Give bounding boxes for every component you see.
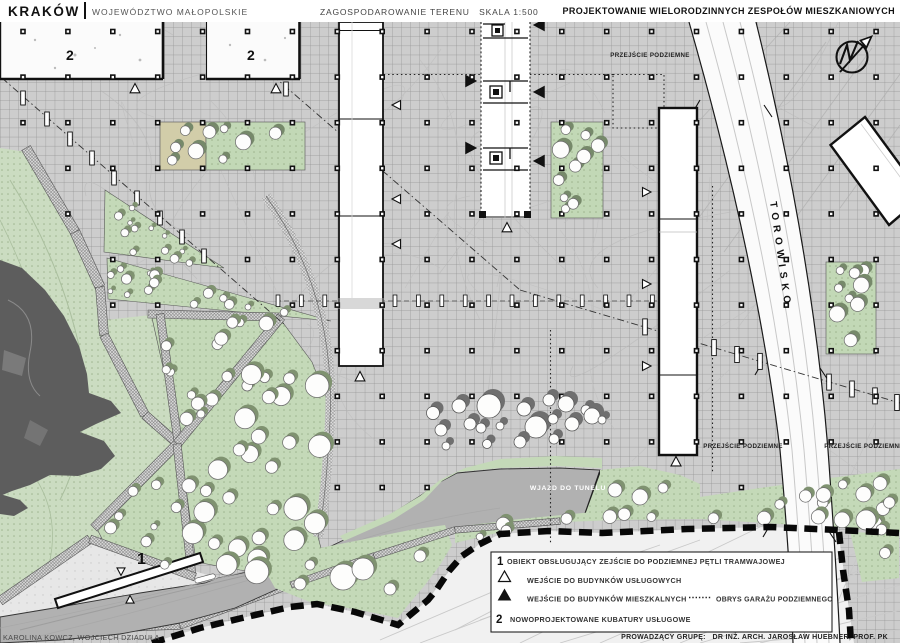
svg-text:2: 2 bbox=[247, 47, 255, 63]
svg-text:OBRYS GARAŻU PODZIEMNEGO: OBRYS GARAŻU PODZIEMNEGO bbox=[716, 596, 833, 604]
svg-text:WEJŚCIE DO BUDYNKÓW MIESZKALNY: WEJŚCIE DO BUDYNKÓW MIESZKALNYCH bbox=[527, 595, 687, 604]
svg-text:PRZEJŚCIE PODZIEMNE: PRZEJŚCIE PODZIEMNE bbox=[610, 52, 690, 59]
svg-text:OBIEKT OBSŁUGUJĄCY ZEJŚCIE DO: OBIEKT OBSŁUGUJĄCY ZEJŚCIE DO PODZIEMNEJ… bbox=[507, 557, 785, 566]
svg-text:WJAZD DO TUNELU: WJAZD DO TUNELU bbox=[530, 485, 606, 492]
svg-text:WEJŚCIE DO BUDYNKÓW USŁUGOWYCH: WEJŚCIE DO BUDYNKÓW USŁUGOWYCH bbox=[527, 576, 682, 585]
svg-text:NOWOPROJEKTOWANE KUBATURY USŁU: NOWOPROJEKTOWANE KUBATURY USŁUGOWE bbox=[510, 615, 691, 624]
svg-text:1: 1 bbox=[497, 556, 504, 568]
svg-text:PRZEJŚCIE PODZIEMNE: PRZEJŚCIE PODZIEMNE bbox=[703, 443, 783, 450]
svg-text:1: 1 bbox=[137, 551, 146, 568]
svg-text:PRZEJŚCIE PODZIEMNE: PRZEJŚCIE PODZIEMNE bbox=[824, 443, 900, 450]
svg-text:2: 2 bbox=[66, 47, 74, 63]
svg-text:PROWADZĄCY GRUPĘ: DR INŻ. AR: PROWADZĄCY GRUPĘ: DR INŻ. ARCH. JAROSŁAW… bbox=[621, 633, 888, 641]
svg-text:2: 2 bbox=[496, 614, 502, 626]
svg-text:KAROLINA KOWCZ, WOJCIECH DZIAD: KAROLINA KOWCZ, WOJCIECH DZIADUŁA bbox=[3, 633, 160, 642]
